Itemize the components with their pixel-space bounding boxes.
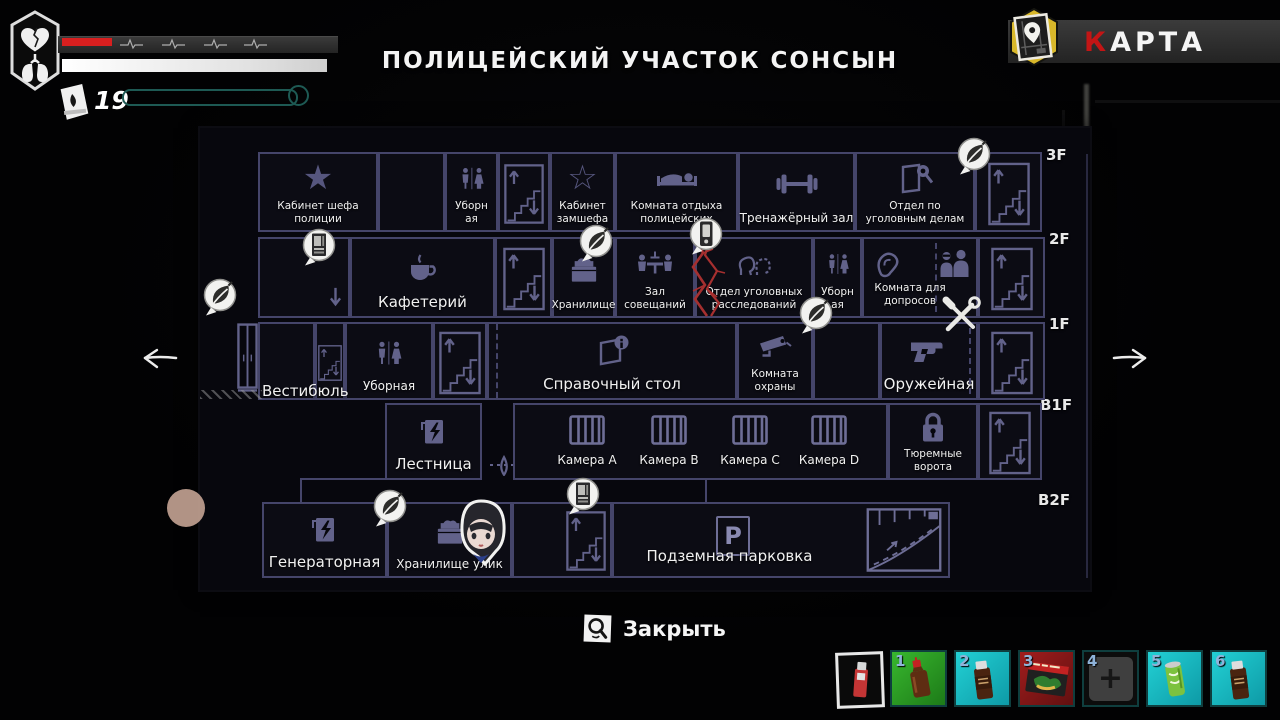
room-label: Лестница [395, 455, 471, 478]
matches-counter [54, 82, 92, 126]
close-map-button[interactable]: Закрыть [584, 615, 726, 642]
cell-b: Камера B [631, 415, 707, 472]
entrance-ground-hatch [200, 390, 262, 399]
background-light-streak [1084, 84, 1089, 134]
restroom-icon [374, 341, 404, 365]
cell-label: Камера D [799, 453, 859, 472]
map-panel: 3F 2F 1F B1F B2F ★ Кабинет шефа полиции … [200, 128, 1090, 590]
equipped-item-slot[interactable] [835, 651, 885, 709]
case-file-icon [897, 160, 933, 196]
corridor-line [300, 478, 302, 504]
breaker-panel-icon [420, 417, 448, 447]
room-underground-parking: P Подземная парковка [612, 502, 950, 578]
matchbook-icon [54, 82, 92, 122]
room-info-desk: Справочный стол [487, 322, 737, 400]
room-label: Генераторная [269, 553, 381, 576]
room-generator: Генераторная [262, 502, 387, 578]
vestibule-label: Вестибюль [262, 382, 349, 400]
cell-label: Камера B [639, 453, 698, 472]
breaker-panel-icon [311, 515, 339, 545]
pistol-icon [909, 338, 949, 364]
floor-tag-1f: 1F [1049, 315, 1070, 333]
coffee-cup-icon [406, 253, 440, 283]
stairs-icon [503, 244, 545, 314]
slot-number: 6 [1215, 652, 1225, 670]
vending-machine-icon [301, 228, 337, 268]
save-point-leaf-icon [956, 137, 992, 177]
magnifier-icon [584, 615, 612, 643]
room-label: Тюремные ворота [892, 448, 974, 478]
jail-bars-icon [732, 415, 768, 445]
room-deputy-office: ☆ Кабинет замшефа [550, 152, 615, 232]
room-empty-3f [378, 152, 445, 232]
cell-c: Камера C [712, 415, 788, 472]
room-label: Подземная парковка [642, 547, 817, 570]
room-stairwell-b1f: Лестница [385, 403, 482, 480]
corridor-dashed-line [496, 324, 498, 398]
red-lighter-icon [844, 658, 875, 701]
arrow-left-icon [140, 342, 178, 374]
room-label: Отдел по уголовным делам [859, 200, 971, 230]
interrogators-icon [936, 249, 970, 277]
room-label: Уборная [363, 379, 415, 398]
map-badge [1004, 6, 1064, 72]
phone-icon [688, 217, 724, 257]
save-point-leaf-icon [578, 224, 614, 264]
flashlight-gauge [122, 89, 298, 106]
room-stairs-b1f [978, 403, 1042, 480]
stairs-icon [991, 329, 1033, 397]
star-filled-icon: ★ [303, 161, 333, 195]
down-arrow-icon [329, 286, 342, 308]
padlock-icon [918, 411, 948, 445]
room-label: Справочный стол [543, 375, 681, 398]
background-wall-line [1095, 100, 1280, 103]
map-title-rest: АРТА [1110, 27, 1206, 58]
stairs-icon [988, 160, 1030, 228]
entrance-door [237, 322, 258, 397]
room-label: Оружейная [884, 375, 975, 398]
room-cafeteria: Кафетерий [350, 237, 495, 318]
inventory-slot-4[interactable]: 4 + [1082, 650, 1139, 707]
close-label: Закрыть [623, 617, 726, 641]
prev-map-arrow[interactable] [140, 342, 178, 378]
game-screen: 19 ПОЛИЦЕЙСКИЙ УЧАСТОК СОНСЫН КАРТА [0, 0, 1280, 720]
plus-icon: + [1098, 661, 1123, 696]
room-label: Кабинет шефа полиции [262, 200, 374, 230]
floor-tag-2f: 2F [1049, 230, 1070, 248]
cell-d: Камера D [791, 415, 867, 472]
workbench-tools-icon [941, 295, 981, 335]
vending-machine-icon [565, 477, 601, 517]
cctv-camera-icon [757, 333, 793, 361]
save-point-leaf-icon [372, 489, 408, 529]
floor-tag-b2f: B2F [1038, 491, 1070, 509]
player-avatar [451, 498, 511, 566]
room-restroom-3f: Уборн ая [445, 152, 498, 232]
inventory-slot-2[interactable]: 2 [954, 650, 1011, 707]
flashlight-gauge-knob [288, 85, 309, 106]
map-screen-title: КАРТА [1084, 27, 1206, 58]
room-stairs-1f [433, 322, 487, 400]
room-divider [969, 328, 971, 394]
room-stairs-2f-right [978, 237, 1045, 318]
room-stairs-3f [498, 152, 550, 232]
stairs-icon [439, 330, 481, 396]
star-outline-icon: ☆ [567, 161, 597, 195]
dumbbell-icon [775, 171, 819, 197]
suspect-heads-icon [736, 251, 772, 277]
jail-bars-icon [651, 415, 687, 445]
room-label: Тренажёрный зал [740, 211, 854, 230]
room-label: Комната охраны [740, 368, 810, 398]
room-gym: Тренажёрный зал [738, 152, 855, 232]
restroom-icon [458, 167, 486, 190]
stairs-icon [566, 507, 606, 575]
inventory-slot-5[interactable]: 5 [1146, 650, 1203, 707]
health-bar-fill [62, 38, 112, 46]
jail-bars-icon [811, 415, 847, 445]
slot-number: 4 [1087, 652, 1097, 670]
room-stairs-1f-right [978, 322, 1045, 400]
slot-number: 2 [959, 652, 969, 670]
stairs-icon [504, 160, 544, 228]
arrow-right-icon [1112, 342, 1150, 374]
room-chief-office: ★ Кабинет шефа полиции [258, 152, 378, 232]
corridor-line [705, 480, 707, 502]
room-label: Уборн ая [449, 200, 495, 230]
room-jail-cells: Камера A Камера B Камера C Камера D [513, 403, 888, 480]
slot-number: 1 [895, 652, 905, 670]
ear-icon [874, 249, 900, 281]
jail-bars-icon [569, 415, 605, 445]
inventory-slot-1[interactable]: 1 [890, 650, 947, 707]
cell-label: Камера A [557, 453, 616, 472]
stairs-icon [991, 244, 1033, 314]
bed-icon [655, 166, 699, 190]
inventory-slot-3[interactable]: 3 [1018, 650, 1075, 707]
map-icon [1004, 6, 1064, 68]
map-title-first-letter: К [1084, 27, 1110, 58]
slot-number: 5 [1151, 652, 1161, 670]
restroom-icon [825, 253, 851, 275]
room-restroom-1f: Уборная [345, 322, 433, 400]
touch-cursor[interactable] [167, 489, 205, 527]
room-label: Хранилище [552, 299, 616, 316]
save-point-leaf-icon [798, 296, 834, 336]
garage-ramp-icon [866, 508, 942, 572]
stair-shaft-line [1086, 154, 1088, 578]
info-desk-icon [595, 334, 629, 368]
room-label: Кафетерий [378, 293, 467, 316]
double-door-icon [237, 322, 258, 393]
save-point-leaf-icon [202, 278, 238, 318]
cell-a: Камера A [549, 415, 625, 472]
floor-tag-3f: 3F [1046, 146, 1067, 164]
slot-number: 3 [1023, 652, 1033, 670]
cell-label: Камера C [720, 453, 779, 472]
corridor-line [300, 478, 387, 480]
next-map-arrow[interactable] [1112, 342, 1150, 378]
meeting-table-icon [635, 250, 675, 278]
room-prison-gate: Тюремные ворота [888, 403, 978, 480]
stairs-icon [989, 410, 1031, 476]
room-stairs-2f [495, 237, 552, 318]
inventory-slot-6[interactable]: 6 [1210, 650, 1267, 707]
